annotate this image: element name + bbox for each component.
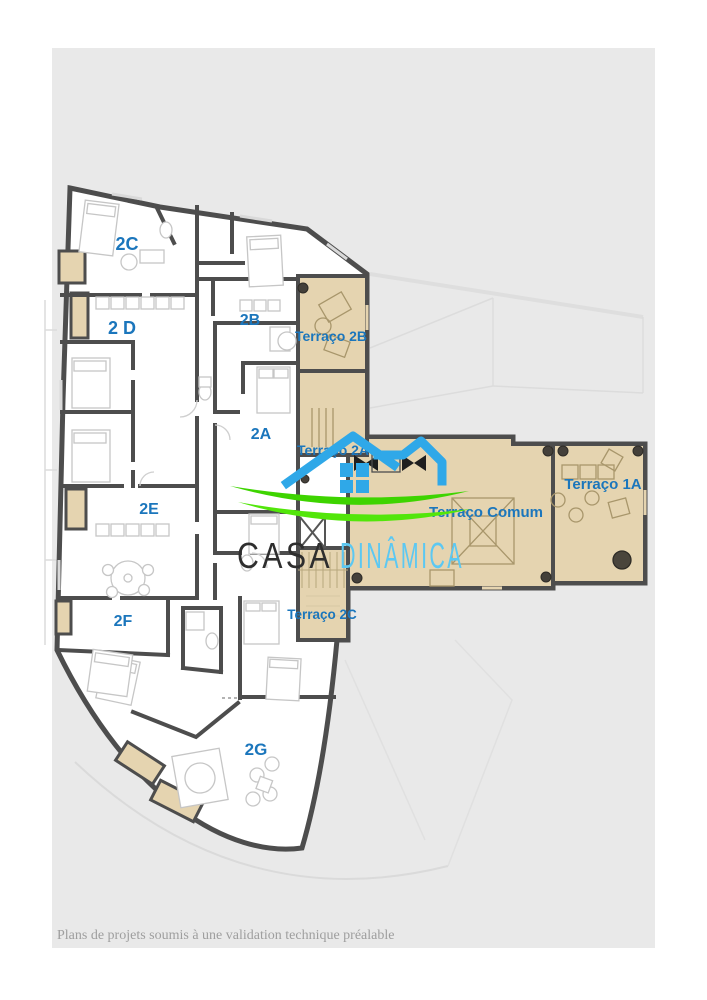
label-unit-2c: 2C [115, 234, 138, 254]
footer-disclaimer: Plans de projets soumis à une validation… [57, 928, 394, 943]
floor-plan-canvas: 2C 2 D 2B Terraço 2B 2A Terraço 2A 2E Te… [0, 0, 707, 1000]
label-terraco-2c: Terraço 2C [287, 607, 357, 622]
label-unit-2g: 2G [245, 740, 268, 759]
label-unit-2a: 2A [251, 426, 272, 443]
label-unit-2f: 2F [114, 613, 133, 630]
brand-word-dinamica: DINÂMICA [340, 535, 464, 576]
brand-word-casa: CASA [237, 535, 333, 576]
label-terraco-1a: Terraço 1A [564, 476, 641, 493]
terrace-2b-area [298, 276, 367, 371]
label-unit-2d: 2 D [108, 318, 136, 338]
label-terraco-2b: Terraço 2B [295, 328, 367, 344]
label-unit-2b: 2B [240, 312, 260, 329]
plan-document-page: 2C 2 D 2B Terraço 2B 2A Terraço 2A 2E Te… [0, 0, 707, 1000]
label-unit-2e: 2E [139, 501, 159, 518]
